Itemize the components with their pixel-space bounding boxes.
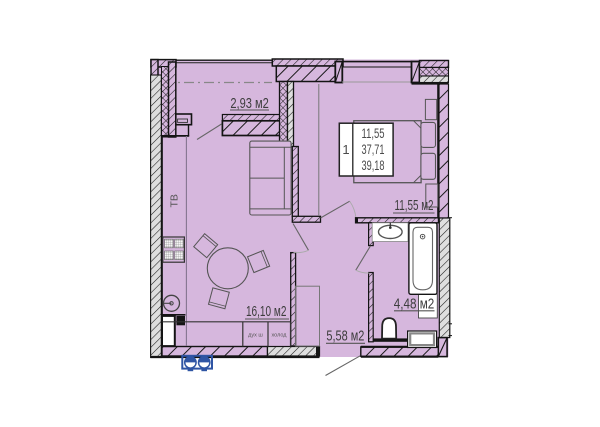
svg-text:ТВ: ТВ [169, 194, 181, 207]
svg-text:5,58 м2: 5,58 м2 [326, 328, 364, 344]
svg-text:4,48 м2: 4,48 м2 [394, 297, 435, 313]
svg-text:11,55 м2: 11,55 м2 [395, 198, 434, 214]
svg-text:холод: холод [271, 333, 287, 339]
svg-text:дух ш: дух ш [248, 333, 263, 339]
svg-text:39,18: 39,18 [362, 158, 385, 173]
svg-text:11,55: 11,55 [362, 126, 385, 141]
svg-text:16,10 м2: 16,10 м2 [246, 304, 287, 320]
svg-text:1: 1 [342, 142, 349, 157]
svg-text:37,71: 37,71 [362, 142, 385, 157]
